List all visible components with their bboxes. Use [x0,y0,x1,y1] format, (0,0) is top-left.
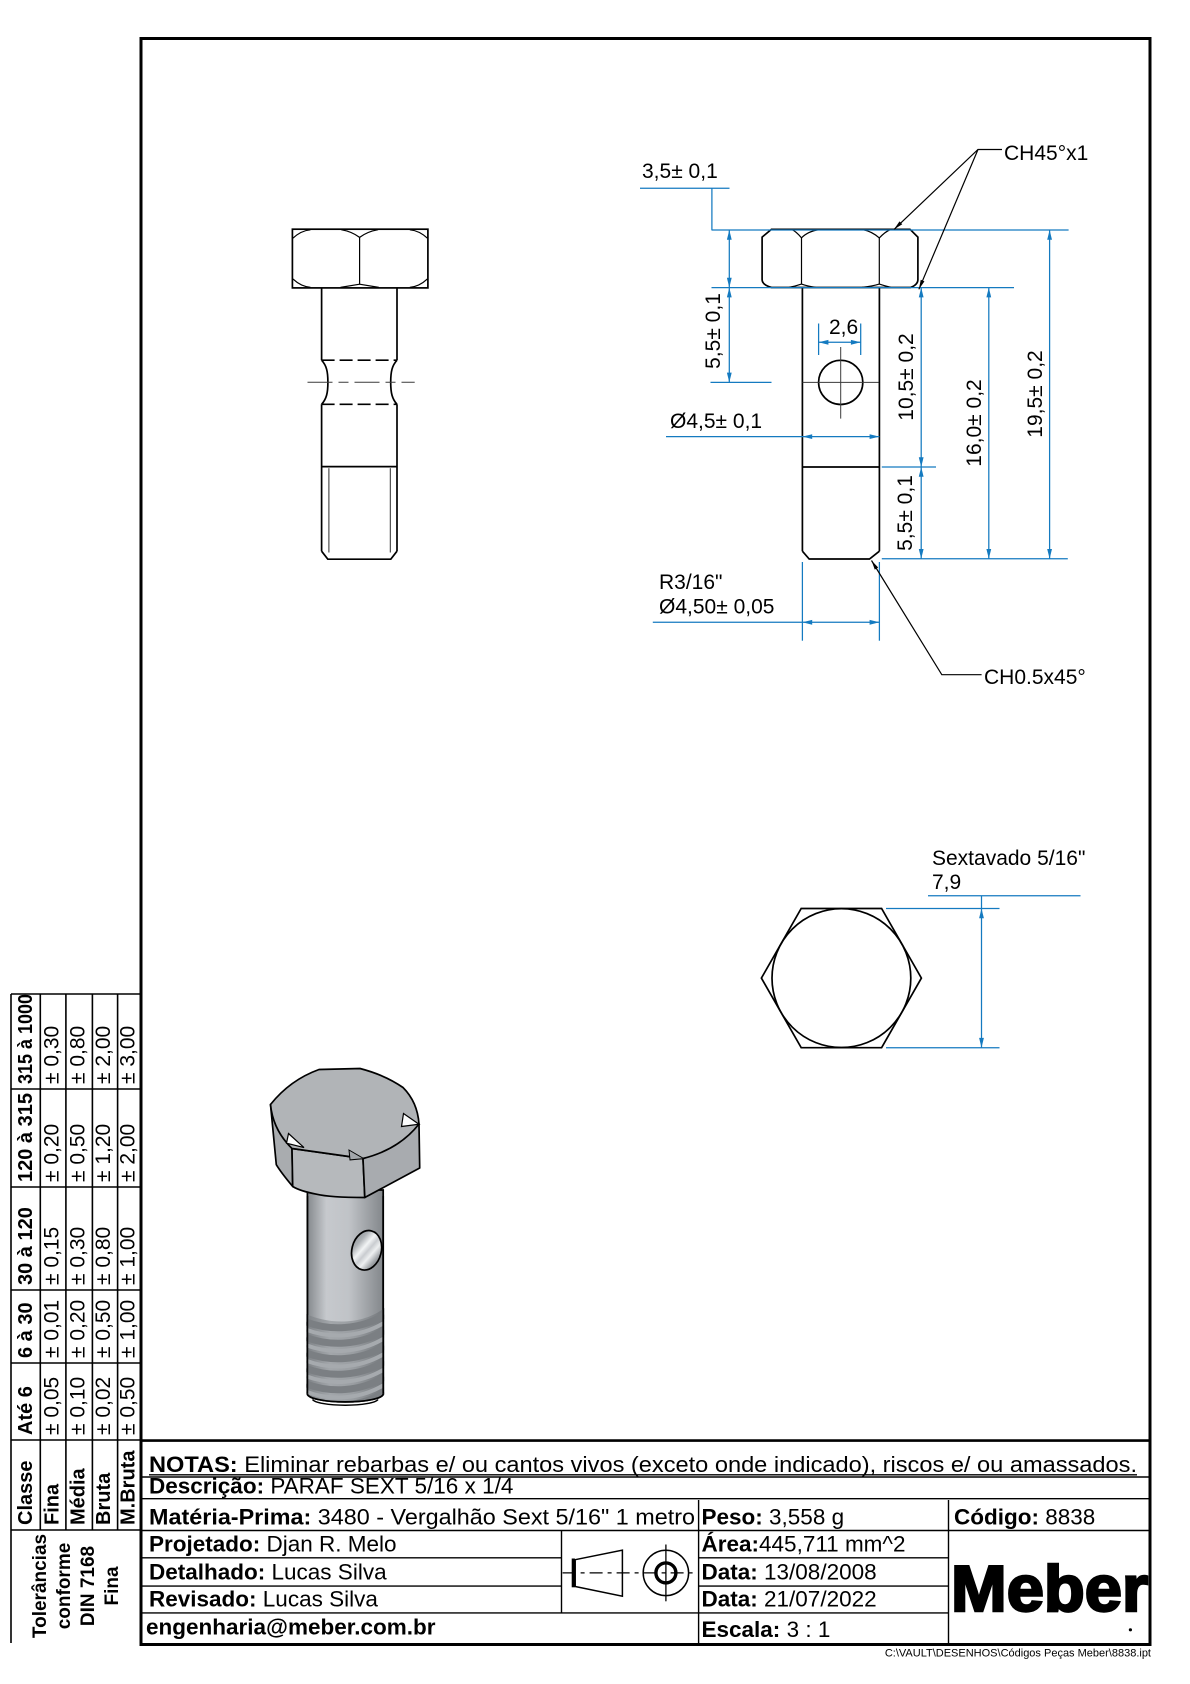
svg-text:± 0,50: ± 0,50 [92,1300,115,1358]
svg-text:5,5± 0,1: 5,5± 0,1 [894,475,917,551]
svg-text:19,5± 0,2: 19,5± 0,2 [1024,350,1047,437]
svg-text:± 0,30: ± 0,30 [41,1026,64,1084]
svg-text:M.Bruta: M.Bruta [118,1450,140,1525]
svg-text:Data: 13/08/2008: Data: 13/08/2008 [702,1560,877,1585]
svg-text:120 à 315: 120 à 315 [15,1093,37,1182]
svg-text:30 à 120: 30 à 120 [15,1207,37,1285]
svg-text:6 à 30: 6 à 30 [15,1302,37,1358]
svg-text:± 0,10: ± 0,10 [67,1377,90,1435]
svg-text:± 0,20: ± 0,20 [67,1300,90,1358]
svg-text:Bruta: Bruta [93,1472,115,1525]
svg-text:± 0,01: ± 0,01 [41,1300,64,1358]
svg-text:± 0,80: ± 0,80 [92,1227,115,1285]
svg-text:± 1,20: ± 1,20 [92,1124,115,1182]
svg-text:7,9: 7,9 [932,871,961,894]
svg-text:± 0,50: ± 0,50 [117,1377,140,1435]
svg-text:DIN 7168: DIN 7168 [78,1546,99,1626]
svg-text:10,5± 0,2: 10,5± 0,2 [895,333,918,420]
svg-text:C:\VAULT\DESENHOS\Códigos Peça: C:\VAULT\DESENHOS\Códigos Peças Meber\88… [885,1648,1151,1660]
svg-text:Projetado: Djan R. Melo: Projetado: Djan R. Melo [149,1532,397,1557]
svg-text:Sextavado 5/16": Sextavado 5/16" [932,847,1085,870]
svg-text:± 0,15: ± 0,15 [41,1227,64,1285]
svg-text:± 2,00: ± 2,00 [117,1124,140,1182]
svg-text:Fina: Fina [42,1483,64,1525]
svg-text:CH0.5x45°: CH0.5x45° [984,666,1086,689]
svg-text:Revisado: Lucas Silva: Revisado: Lucas Silva [149,1587,378,1612]
svg-text:Ø4,50± 0,05: Ø4,50± 0,05 [659,596,774,619]
svg-text:5,5± 0,1: 5,5± 0,1 [702,293,725,369]
svg-text:± 1,00: ± 1,00 [117,1227,140,1285]
svg-text:Meber: Meber [951,1552,1148,1625]
svg-text:Matéria-Prima: 3480 - Vergalhã: Matéria-Prima: 3480 - Vergalhão Sext 5/1… [149,1505,695,1530]
svg-text:Descrição: PARAF SEXT 5/16 x 1: Descrição: PARAF SEXT 5/16 x 1/4 [149,1474,513,1499]
svg-text:315 à 1000: 315 à 1000 [15,994,37,1084]
svg-text:Fina: Fina [102,1566,123,1605]
svg-text:Classe: Classe [15,1461,37,1526]
svg-text:± 1,00: ± 1,00 [117,1300,140,1358]
svg-text:Até 6: Até 6 [15,1386,37,1435]
svg-text:± 0,02: ± 0,02 [92,1377,115,1435]
svg-text:Data: 21/07/2022: Data: 21/07/2022 [702,1587,877,1612]
svg-text:Área:445,711 mm^2: Área:445,711 mm^2 [702,1532,906,1557]
svg-text:engenharia@meber.com.br: engenharia@meber.com.br [146,1615,436,1640]
svg-text:± 0,20: ± 0,20 [41,1124,64,1182]
svg-text:± 3,00: ± 3,00 [117,1026,140,1084]
svg-text:16,0± 0,2: 16,0± 0,2 [963,379,986,466]
svg-text:Código: 8838: Código: 8838 [954,1505,1095,1530]
svg-text:2,6: 2,6 [829,316,858,339]
svg-text:Peso: 3,558 g: Peso: 3,558 g [702,1505,845,1530]
svg-text:Escala: 3 : 1: Escala: 3 : 1 [702,1617,831,1642]
svg-text:± 0,30: ± 0,30 [67,1227,90,1285]
svg-text:± 0,50: ± 0,50 [67,1124,90,1182]
svg-text:conforme: conforme [54,1543,75,1630]
svg-text:3,5± 0,1: 3,5± 0,1 [642,160,718,183]
svg-text:± 0,80: ± 0,80 [67,1026,90,1084]
svg-text:Ø4,5± 0,1: Ø4,5± 0,1 [670,410,762,433]
svg-text:Detalhado: Lucas Silva: Detalhado: Lucas Silva [149,1560,387,1585]
svg-text:Tolerâncias: Tolerâncias [30,1534,51,1638]
svg-text:R3/16": R3/16" [659,571,723,594]
svg-text:Média: Média [68,1467,90,1525]
svg-text:± 0,05: ± 0,05 [41,1377,64,1435]
svg-text:± 2,00: ± 2,00 [92,1026,115,1084]
svg-text:CH45°x1: CH45°x1 [1004,142,1088,165]
